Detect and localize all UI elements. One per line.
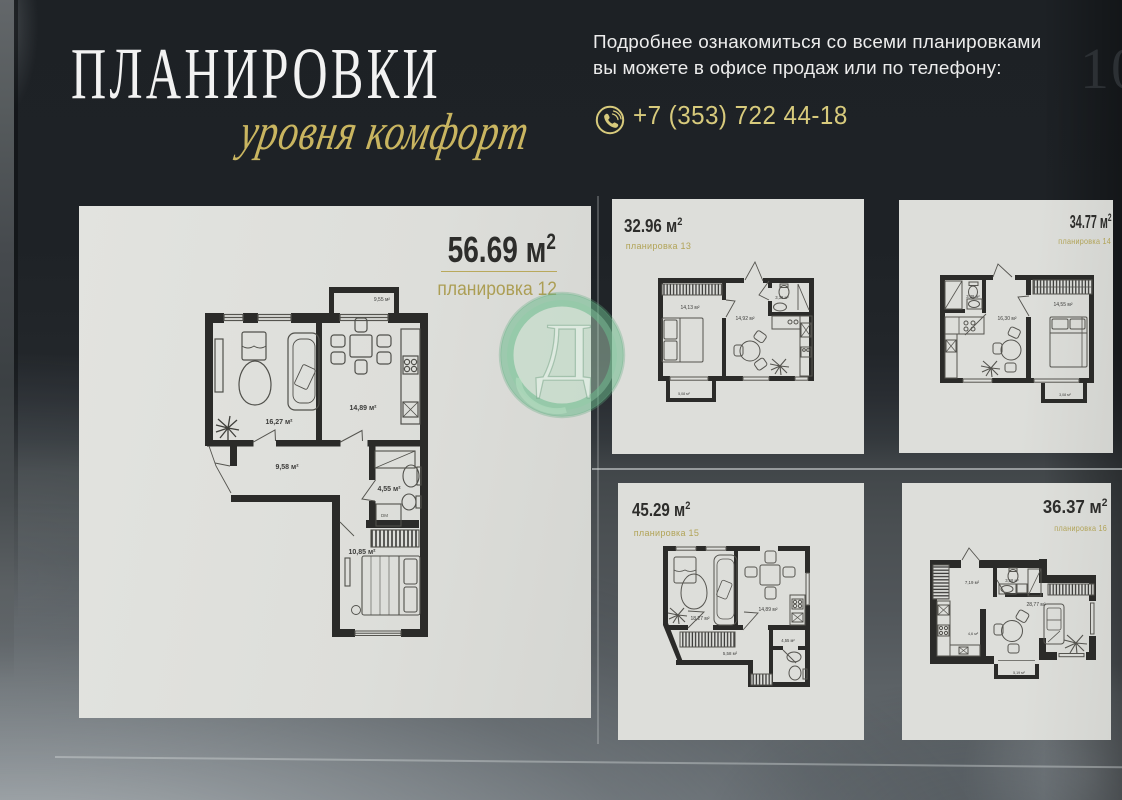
svg-text:3,39 м²: 3,39 м² [966, 294, 980, 299]
svg-text:14,89 м²: 14,89 м² [758, 607, 777, 613]
svg-text:10,85 м²: 10,85 м² [349, 549, 377, 556]
svg-text:3,58 м²: 3,58 м² [1005, 578, 1019, 583]
svg-text:3,38 м²: 3,38 м² [775, 295, 789, 300]
svg-text:3,08 м²: 3,08 м² [1059, 393, 1071, 397]
svg-text:4,6 м²: 4,6 м² [968, 632, 979, 636]
svg-text:9,58 м²: 9,58 м² [275, 464, 299, 471]
svg-text:4,55 м²: 4,55 м² [377, 486, 401, 493]
svg-text:14,55 м²: 14,55 м² [1053, 302, 1072, 308]
svg-text:Д: Д [535, 306, 592, 399]
svg-text:5,08 м²: 5,08 м² [678, 392, 690, 396]
svg-text:14,92 м²: 14,92 м² [735, 316, 754, 322]
svg-text:14,89 м²: 14,89 м² [350, 405, 378, 412]
svg-text:28,77 м²: 28,77 м² [1026, 602, 1045, 608]
svg-text:5,58 м²: 5,58 м² [723, 651, 738, 656]
svg-text:4,55 м²: 4,55 м² [781, 638, 795, 643]
svg-text:9,55 м²: 9,55 м² [374, 297, 391, 303]
svg-text:5,19 м²: 5,19 м² [1013, 671, 1025, 675]
svg-text:14,13 м²: 14,13 м² [680, 305, 699, 311]
svg-text:18,27 м²: 18,27 м² [690, 616, 709, 622]
svg-text:16,30 м²: 16,30 м² [997, 316, 1016, 322]
svg-text:7,19 м²: 7,19 м² [965, 580, 980, 585]
svg-text:16,27 м²: 16,27 м² [266, 419, 294, 426]
svg-text:DM: DM [381, 513, 388, 518]
